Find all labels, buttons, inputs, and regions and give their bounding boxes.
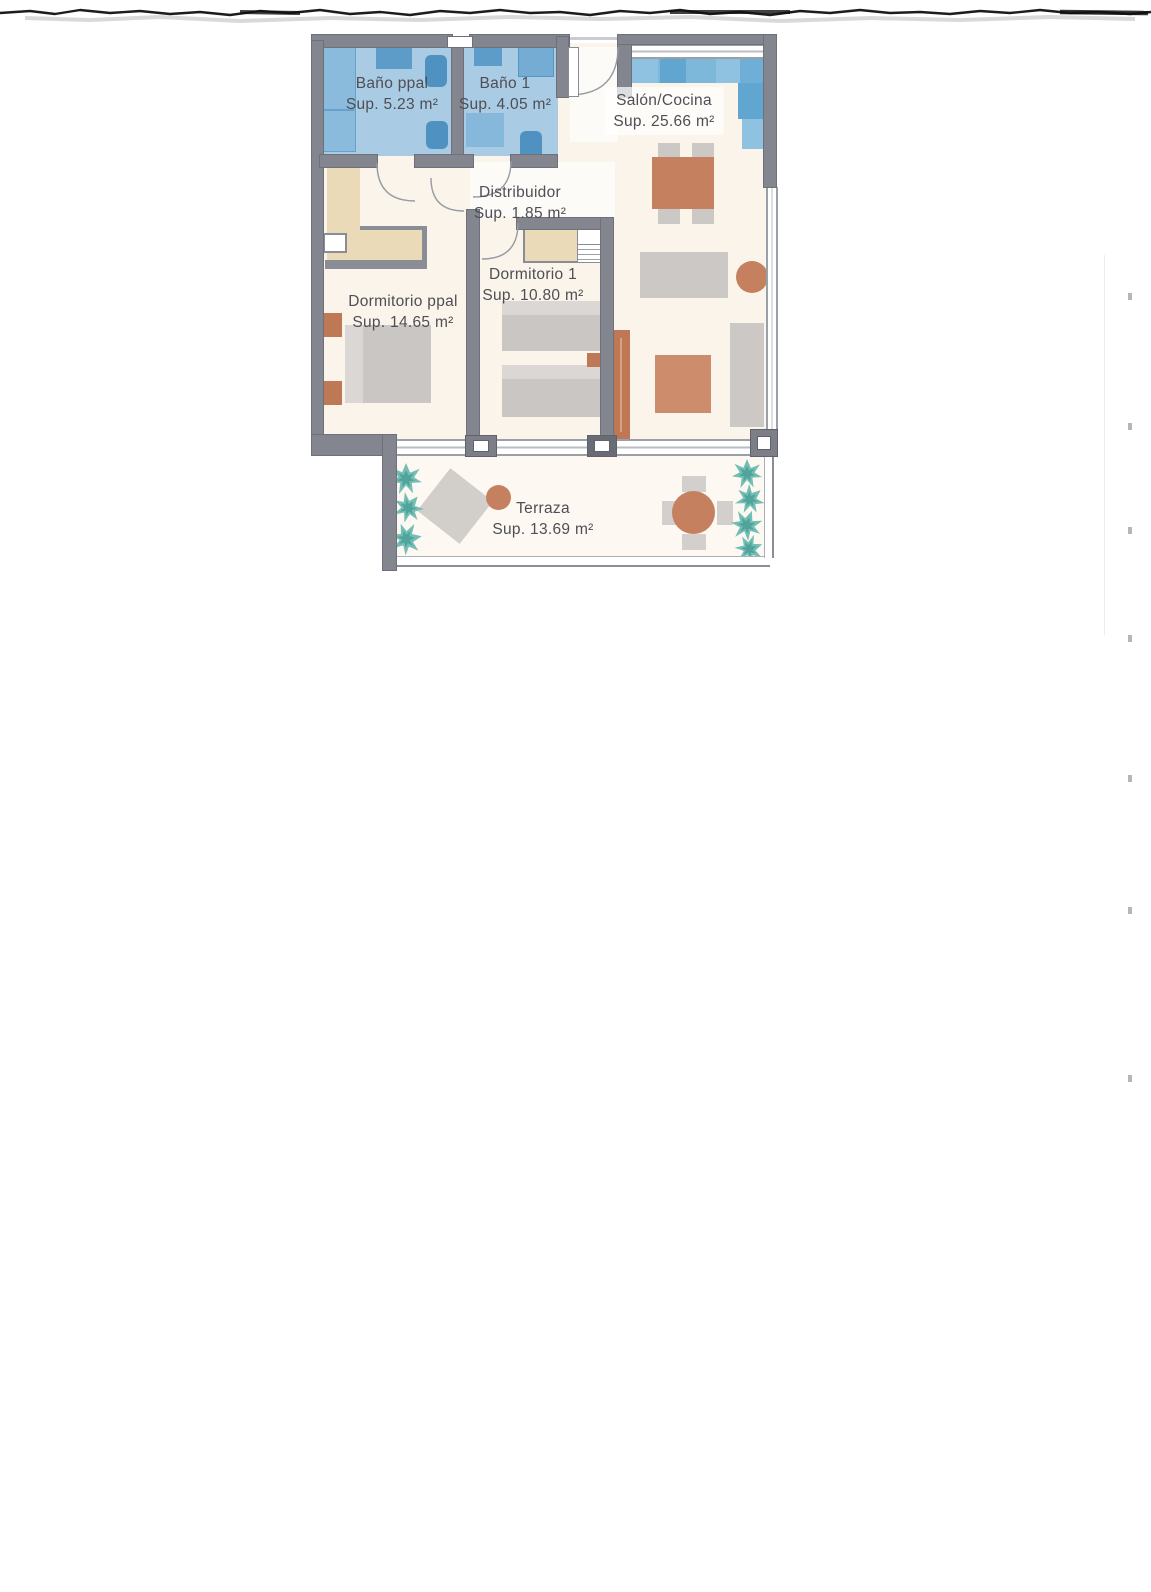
nightstand-ppal xyxy=(320,313,342,337)
dining-chair xyxy=(692,143,714,158)
bed2-dorm1 xyxy=(502,365,602,417)
terrace-table xyxy=(672,491,715,534)
wall-terrace-left xyxy=(383,435,396,570)
scan-tick xyxy=(1128,635,1132,642)
pillar-post xyxy=(587,435,617,457)
wall-baths-bottom-c xyxy=(511,155,557,167)
sideboard xyxy=(613,330,630,440)
rug xyxy=(655,355,711,413)
room-name: Salón/Cocina xyxy=(613,90,714,111)
wall-dorm1-right xyxy=(601,218,613,455)
pillar-post-corner xyxy=(750,429,778,457)
wall-baths-bottom-b xyxy=(415,155,473,167)
room-name: Dormitorio ppal xyxy=(348,291,458,312)
toilet-bano1 xyxy=(520,131,542,157)
room-area: Sup. 5.23 m² xyxy=(346,94,438,115)
terrace-chair xyxy=(682,476,706,492)
scan-tick xyxy=(1128,527,1132,534)
room-name: Baño ppal xyxy=(346,73,438,94)
sink-bano1 xyxy=(474,46,502,66)
sideboard-highlight xyxy=(620,338,622,432)
salon-side-window xyxy=(766,187,778,431)
dining-chair xyxy=(658,209,680,224)
kitchen-counter-side xyxy=(742,119,764,149)
room-area: Sup. 10.80 m² xyxy=(482,285,583,306)
nightstand-dorm1 xyxy=(587,353,601,367)
terrace-chair xyxy=(717,501,733,525)
scan-tick xyxy=(1128,423,1132,430)
scanned-page: Baño ppal Sup. 5.23 m² Baño 1 Sup. 4.05 … xyxy=(0,0,1151,1592)
room-label-dormitorio-1: Dormitorio 1 Sup. 10.80 m² xyxy=(482,264,583,306)
terrace-railing-bottom xyxy=(396,556,770,567)
coffee-table xyxy=(736,261,768,293)
dining-table xyxy=(652,157,714,209)
sink-ppal xyxy=(376,47,412,69)
wall-top-left xyxy=(312,35,452,47)
room-name: Distribuidor xyxy=(474,182,566,203)
room-label-dormitorio-ppal: Dormitorio ppal Sup. 14.65 m² xyxy=(348,291,458,333)
closet1 xyxy=(525,227,577,261)
room-area: Sup. 4.05 m² xyxy=(459,94,551,115)
dining-chair xyxy=(658,143,680,158)
terrace-chair xyxy=(682,534,706,550)
room-name: Terraza xyxy=(492,498,593,519)
pillar-symbol xyxy=(323,233,347,253)
scan-tick xyxy=(1128,1075,1132,1082)
salon-window xyxy=(628,44,764,59)
scan-tick xyxy=(1128,907,1132,914)
sofa-vertical xyxy=(730,323,764,427)
room-label-terraza: Terraza Sup. 13.69 m² xyxy=(492,498,593,540)
room-label-bano-1: Baño 1 Sup. 4.05 m² xyxy=(459,73,551,115)
scan-tick xyxy=(1128,293,1132,300)
closet-ppal-edge xyxy=(360,226,425,230)
room-label-distribuidor: Distribuidor Sup. 1.85 m² xyxy=(474,182,566,224)
dining-chair xyxy=(692,209,714,224)
wall-baths-bottom-a xyxy=(320,155,377,167)
wall-entry-jamb xyxy=(557,37,568,97)
room-area: Sup. 25.66 m² xyxy=(613,111,714,132)
terrace-sliding-doors xyxy=(396,439,750,456)
wall-salon-top xyxy=(618,35,776,44)
pillar-post xyxy=(465,435,497,457)
room-area: Sup. 14.65 m² xyxy=(348,312,458,333)
entry-door-leaf xyxy=(568,47,579,97)
room-area: Sup. 13.69 m² xyxy=(492,519,593,540)
bed-ppal xyxy=(345,325,431,403)
closet-ppal-wall xyxy=(325,260,427,269)
scan-top-edge-artifact xyxy=(0,0,1151,34)
kitchen-cooktop xyxy=(738,83,764,119)
entry-threshold xyxy=(569,37,618,40)
room-label-salon-cocina: Salón/Cocina Sup. 25.66 m² xyxy=(604,87,723,135)
closet-ppal-vertical xyxy=(327,168,360,230)
wall-top-mid xyxy=(470,35,569,47)
room-area: Sup. 1.85 m² xyxy=(474,203,566,224)
room-label-bano-ppal: Baño ppal Sup. 5.23 m² xyxy=(346,73,438,115)
shower-tray-bano1 xyxy=(466,113,504,147)
wall-right-outer xyxy=(764,35,776,187)
room-name: Baño 1 xyxy=(459,73,551,94)
bidet-ppal xyxy=(426,121,448,149)
top-wall-window xyxy=(447,36,473,48)
scan-tick xyxy=(1128,775,1132,782)
floor-plan: Baño ppal Sup. 5.23 m² Baño 1 Sup. 4.05 … xyxy=(312,35,776,575)
bed1-dorm1 xyxy=(502,301,602,351)
nightstand-ppal xyxy=(320,381,342,405)
wall-bedroom-divider xyxy=(467,210,479,455)
room-name: Dormitorio 1 xyxy=(482,264,583,285)
scan-fold-line xyxy=(1104,255,1105,635)
sofa-horizontal xyxy=(640,252,728,298)
terrace-railing-right xyxy=(764,452,774,558)
wall-left-outer xyxy=(312,41,323,455)
